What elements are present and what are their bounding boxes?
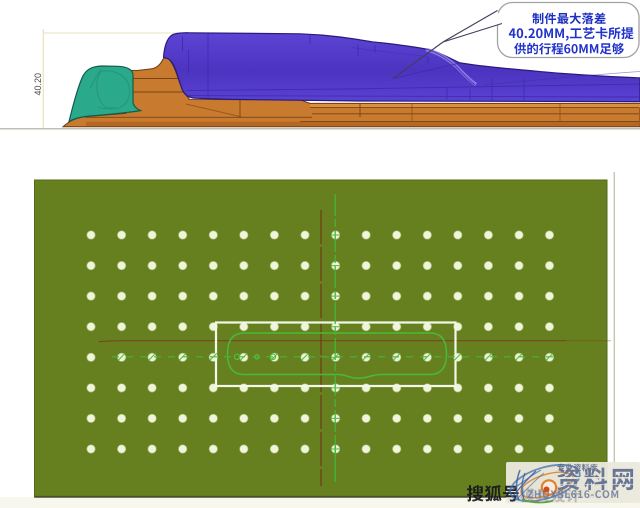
svg-text:40.20: 40.20	[33, 73, 43, 96]
